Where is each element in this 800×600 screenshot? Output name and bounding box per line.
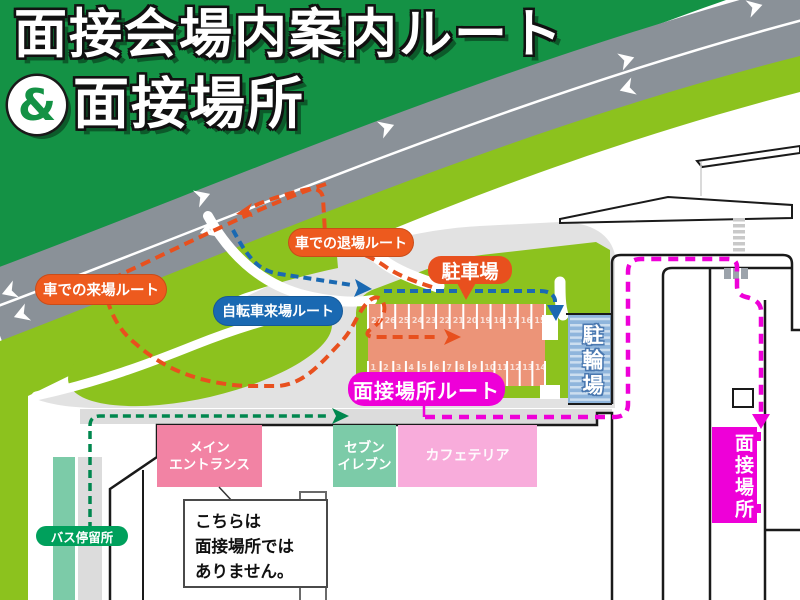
label-bus-stop: バス停留所 xyxy=(36,526,128,546)
label-parking: 駐車場 xyxy=(428,256,512,284)
stall-number: 8 xyxy=(459,363,465,372)
label-bicycle-parking: 駐輪場 xyxy=(577,324,607,399)
label-main-entrance: メイン エントランス xyxy=(157,440,262,474)
stall-number: 12 xyxy=(510,363,521,372)
stall-number: 25 xyxy=(398,316,409,325)
stall-number: 5 xyxy=(421,363,427,372)
stall-number: 6 xyxy=(434,363,440,372)
stall-number: 27 xyxy=(371,316,382,325)
label-interview-route: 面接場所ルート xyxy=(348,372,505,406)
stall-number: 21 xyxy=(453,316,464,325)
parking-notch-bottom xyxy=(540,385,560,399)
stall-number: 24 xyxy=(412,316,423,325)
label-bicycle-route: 自転車来場ルート xyxy=(213,296,343,326)
stall-number: 23 xyxy=(425,316,436,325)
label-interview-location: 面接場所 xyxy=(712,432,757,522)
stall-number: 2 xyxy=(383,363,389,372)
stall-number: 11 xyxy=(497,363,508,372)
page-title-line2: & 面接場所 xyxy=(8,76,305,134)
stall-number: 18 xyxy=(494,316,505,325)
page-title-line2-text: 面接場所 xyxy=(73,77,305,133)
label-car-arrival-route: 車での来場ルート xyxy=(35,274,167,305)
stall-number: 10 xyxy=(484,363,495,372)
stall-number: 13 xyxy=(522,363,533,372)
stall-number: 9 xyxy=(472,363,478,372)
stall-number: 14 xyxy=(535,363,546,372)
note-box: こちらは 面接場所では ありません。 xyxy=(183,499,328,588)
stall-number: 15 xyxy=(534,316,545,325)
window xyxy=(733,389,753,407)
label-seven-eleven: セブン イレブン xyxy=(333,440,396,474)
left-grass-strip xyxy=(0,392,28,600)
venue-map: 面接会場内案内ルート & 面接場所 車での来場ルート 車での退場ルート 自転車来… xyxy=(0,0,800,600)
stall-number: 19 xyxy=(480,316,491,325)
stall-number: 16 xyxy=(521,316,532,325)
stall-number: 17 xyxy=(507,316,518,325)
stall-number: 26 xyxy=(385,316,396,325)
stall-number: 3 xyxy=(396,363,402,372)
stall-number: 7 xyxy=(446,363,452,372)
stall-number: 20 xyxy=(466,316,477,325)
label-cafeteria: カフェテリア xyxy=(398,448,537,466)
page-title-line1: 面接会場内案内ルート xyxy=(14,8,564,61)
ampersand-badge: & xyxy=(8,76,66,134)
stall-number: 4 xyxy=(408,363,414,372)
stall-number: 1 xyxy=(371,363,377,372)
label-car-exit-route: 車での退場ルート xyxy=(288,228,414,257)
stall-number: 22 xyxy=(439,316,450,325)
